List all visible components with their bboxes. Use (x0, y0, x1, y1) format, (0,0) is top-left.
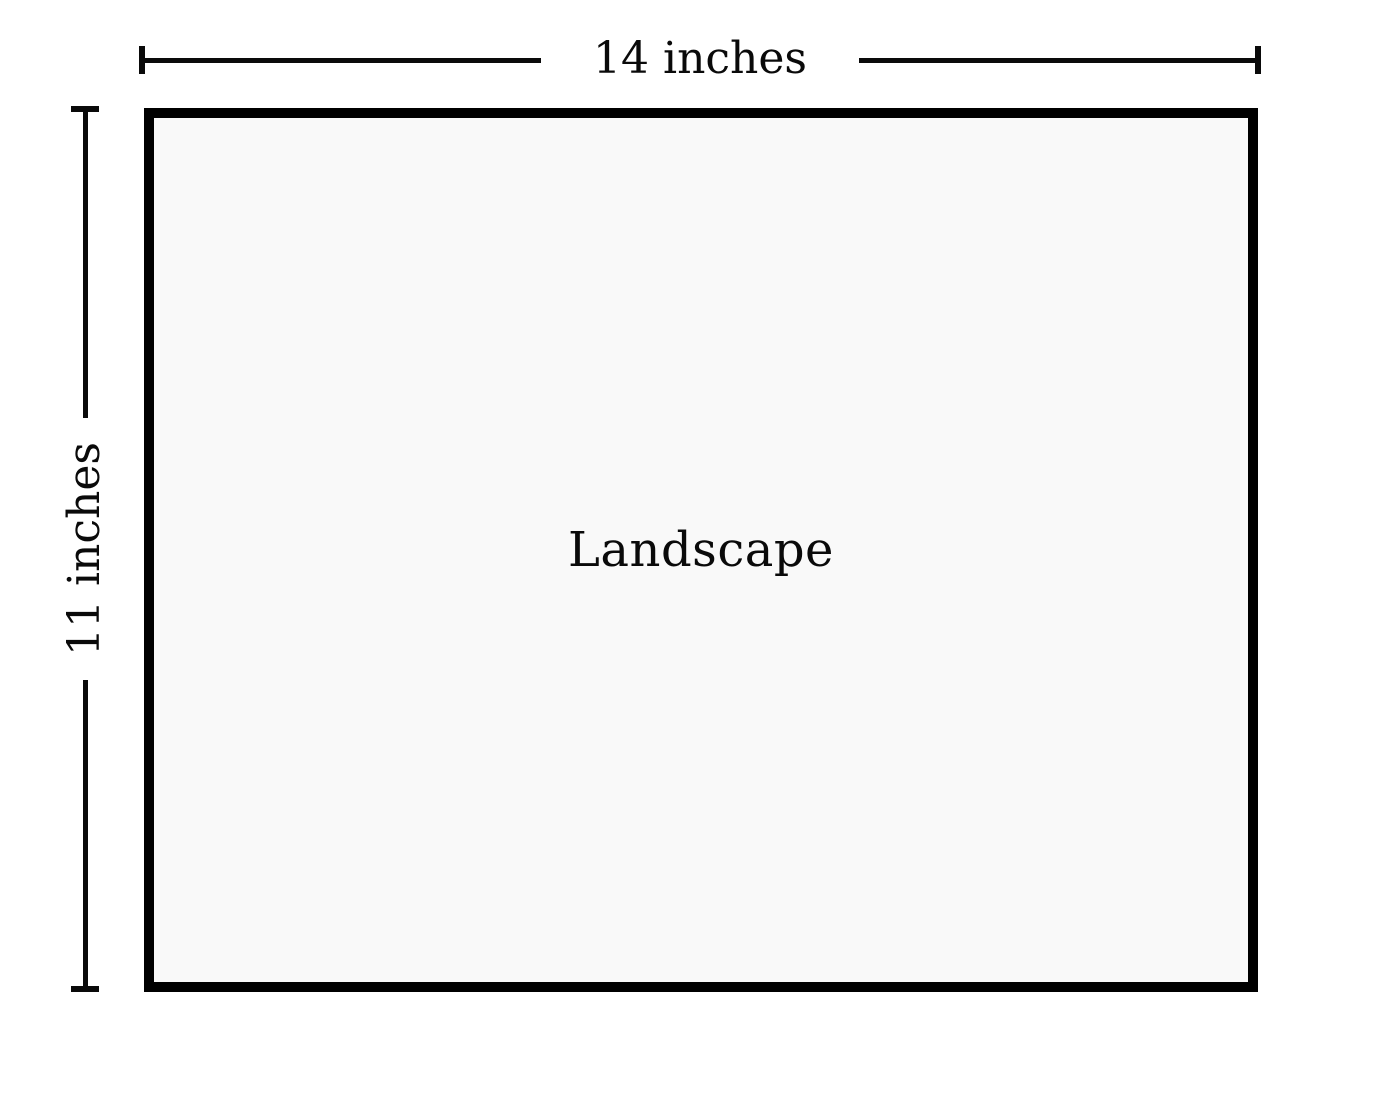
dimension-tick-bottom (71, 986, 99, 992)
dimension-line-bottom-segment (83, 680, 88, 986)
width-dimension-label: 14 inches (541, 37, 859, 81)
height-dimension: 11 inches (69, 106, 101, 992)
diagram-canvas: 14 inches 11 inches Landscape (0, 0, 1400, 1100)
dimension-tick-right (1255, 46, 1261, 74)
shape-label: Landscape (568, 526, 834, 574)
width-dimension: 14 inches (139, 44, 1261, 76)
dimension-line-top-segment (83, 112, 88, 418)
landscape-rectangle: Landscape (144, 108, 1258, 992)
dimension-line-left-segment (145, 58, 541, 63)
dimension-line-right-segment (859, 58, 1255, 63)
height-dimension-label: 11 inches (63, 418, 107, 680)
